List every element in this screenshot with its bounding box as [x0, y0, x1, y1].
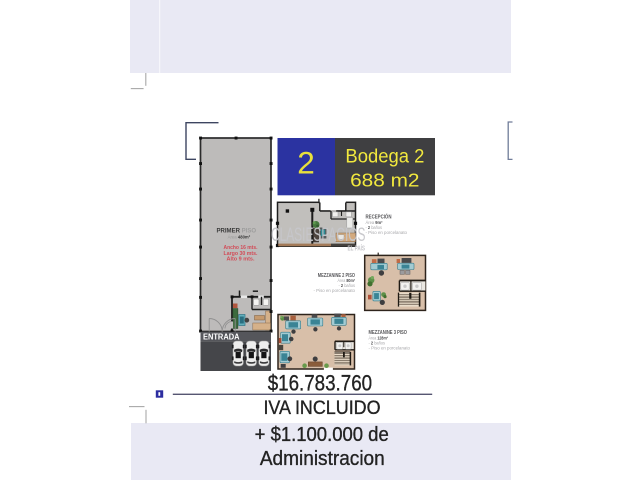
svg-text:ENTRADA: ENTRADA: [203, 333, 240, 342]
svg-text:CLASIESPACIOS: CLASIESPACIOS: [271, 225, 366, 246]
svg-text:Área 480m²: Área 480m²: [228, 233, 251, 240]
svg-text:$16.783.760: $16.783.760: [268, 371, 372, 396]
svg-text:Alto 9 mts.: Alto 9 mts.: [227, 256, 256, 262]
svg-text:+ $1.100.000 de: + $1.100.000 de: [255, 424, 389, 446]
svg-text:PRIMER PISO: PRIMER PISO: [216, 228, 256, 235]
svg-text:IVA INCLUIDO: IVA INCLUIDO: [263, 398, 380, 419]
svg-text:- Piso en porcelanato: - Piso en porcelanato: [369, 346, 411, 351]
svg-text:- Piso en porcelanato: - Piso en porcelanato: [366, 230, 408, 235]
svg-text:- Piso en porcelanato: - Piso en porcelanato: [314, 288, 356, 293]
svg-text:Bodega 2: Bodega 2: [345, 146, 424, 168]
svg-text:2: 2: [297, 145, 315, 181]
svg-text:Administracion: Administracion: [260, 448, 385, 470]
svg-text:688 m2: 688 m2: [350, 169, 419, 190]
svg-text:EL PAÍS: EL PAÍS: [348, 244, 366, 253]
